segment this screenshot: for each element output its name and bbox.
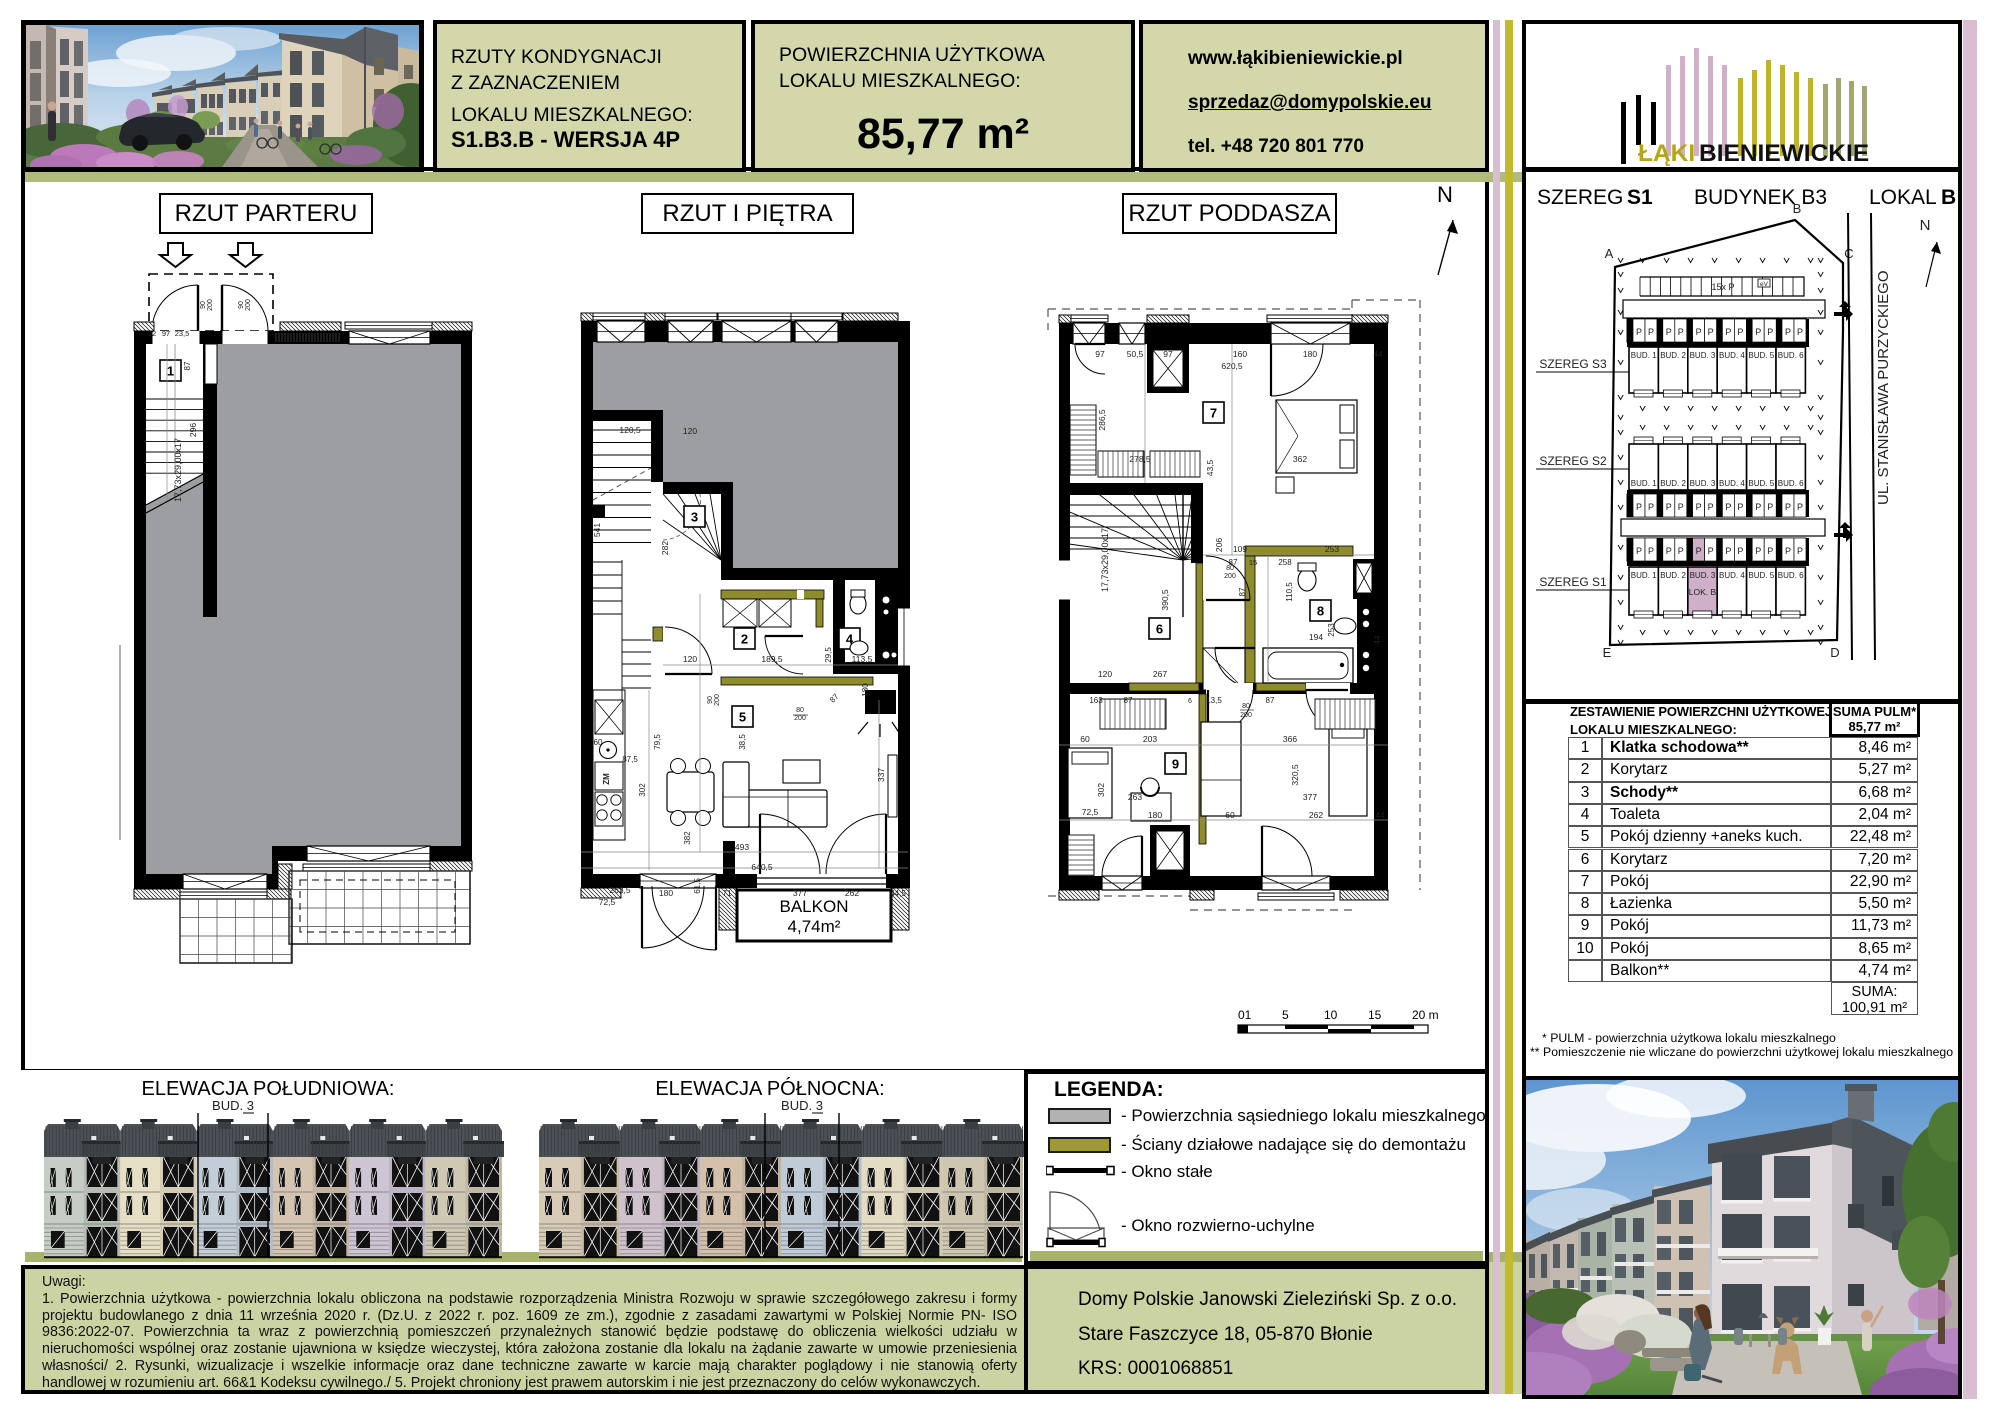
svg-text:5: 5: [739, 710, 746, 725]
svg-text:BUD. 3: BUD. 3: [212, 1098, 254, 1113]
svg-text:200: 200: [207, 299, 214, 311]
svg-text:P: P: [1797, 546, 1803, 556]
svg-text:BUD. 3: BUD. 3: [1690, 571, 1716, 580]
svg-text:87,5: 87,5: [622, 755, 638, 764]
svg-text:BUD. 2: BUD. 2: [1660, 479, 1686, 488]
svg-text:P: P: [1725, 546, 1731, 556]
svg-text:P: P: [1797, 327, 1803, 337]
svg-text:P: P: [1678, 546, 1684, 556]
svg-text:200: 200: [1224, 573, 1236, 580]
svg-text:38,5: 38,5: [738, 734, 747, 750]
svg-text:87: 87: [183, 361, 192, 370]
svg-text:180: 180: [861, 683, 870, 697]
svg-text:80: 80: [1226, 565, 1234, 572]
svg-text:BUD. 3: BUD. 3: [1690, 351, 1716, 360]
svg-text:189,5: 189,5: [761, 654, 783, 664]
svg-text:2: 2: [741, 632, 748, 647]
svg-text:286,5: 286,5: [1097, 409, 1107, 431]
svg-text:97: 97: [1163, 349, 1173, 359]
svg-text:P: P: [1737, 327, 1743, 337]
svg-text:163: 163: [1089, 696, 1103, 705]
svg-text:258: 258: [1278, 558, 1292, 567]
svg-text:263,5: 263,5: [609, 885, 631, 895]
svg-text:337: 337: [876, 768, 886, 782]
svg-text:9: 9: [1172, 757, 1179, 772]
svg-text:17,73x29,00x17: 17,73x29,00x17: [1100, 528, 1110, 592]
svg-text:P: P: [1725, 327, 1731, 337]
svg-text:BUD. 6: BUD. 6: [1778, 479, 1804, 488]
svg-text:200: 200: [794, 715, 806, 722]
svg-text:P: P: [1648, 327, 1654, 337]
svg-text:P: P: [1678, 502, 1684, 512]
svg-text:P: P: [1755, 327, 1761, 337]
svg-text:P: P: [1767, 502, 1773, 512]
svg-text:60: 60: [594, 738, 603, 747]
svg-text:90: 90: [238, 301, 245, 309]
svg-text:302: 302: [638, 783, 647, 797]
svg-text:180: 180: [659, 888, 673, 898]
svg-text:6: 6: [1156, 622, 1163, 637]
svg-text:12: 12: [148, 329, 156, 338]
svg-text:D: D: [1830, 645, 1839, 660]
svg-text:23,5: 23,5: [175, 329, 190, 338]
svg-text:BUD. 5: BUD. 5: [1748, 571, 1774, 580]
svg-text:180: 180: [1148, 810, 1162, 820]
svg-text:SZEREG S3: SZEREG S3: [1539, 357, 1607, 371]
svg-text:362: 362: [1293, 454, 1307, 464]
svg-text:203: 203: [1143, 734, 1157, 744]
svg-text:P: P: [1636, 327, 1642, 337]
svg-text:262: 262: [1309, 810, 1323, 820]
svg-text:LOKAL: LOKAL: [1869, 186, 1937, 209]
svg-text:29,5: 29,5: [824, 647, 833, 663]
svg-text:P: P: [1678, 327, 1684, 337]
svg-text:BUD. 3: BUD. 3: [1690, 479, 1716, 488]
svg-text:80: 80: [1242, 703, 1250, 710]
svg-text:113,5: 113,5: [852, 654, 873, 664]
svg-text:44: 44: [1374, 350, 1383, 359]
svg-text:493: 493: [735, 842, 749, 852]
svg-text:P: P: [1708, 502, 1714, 512]
svg-text:90: 90: [200, 301, 207, 309]
svg-text:P: P: [1785, 502, 1791, 512]
svg-text:5: 5: [1282, 1008, 1289, 1022]
svg-text:7: 7: [1210, 406, 1217, 421]
svg-text:60: 60: [1225, 810, 1235, 820]
svg-text:15: 15: [1368, 1008, 1382, 1022]
svg-text:13,5: 13,5: [1206, 696, 1222, 705]
svg-text:N: N: [1437, 182, 1453, 207]
svg-text:110,5: 110,5: [1285, 582, 1294, 602]
svg-text:BUD. 6: BUD. 6: [1778, 571, 1804, 580]
svg-text:262: 262: [845, 888, 859, 898]
svg-text:200: 200: [245, 299, 252, 311]
svg-text:P: P: [1666, 546, 1672, 556]
svg-text:377: 377: [1303, 792, 1317, 802]
svg-text:87: 87: [828, 692, 841, 705]
svg-text:72,5: 72,5: [1082, 807, 1099, 817]
svg-text:P: P: [1708, 546, 1714, 556]
svg-text:282: 282: [660, 541, 670, 555]
svg-text:BUD. 1: BUD. 1: [1631, 351, 1657, 360]
svg-text:80: 80: [796, 707, 804, 714]
svg-text:BUDYNEK B3: BUDYNEK B3: [1694, 186, 1827, 209]
svg-text:4,74m²: 4,74m²: [788, 917, 841, 936]
svg-text:B: B: [1793, 201, 1802, 216]
svg-text:1: 1: [167, 364, 174, 379]
svg-text:P: P: [1666, 327, 1672, 337]
svg-text:60: 60: [1080, 734, 1090, 744]
svg-text:120: 120: [683, 426, 697, 436]
svg-text:44: 44: [1373, 635, 1382, 644]
svg-text:01: 01: [1238, 1008, 1252, 1022]
svg-text:P: P: [1725, 502, 1731, 512]
svg-text:ELEWACJA POŁUDNIOWA:: ELEWACJA POŁUDNIOWA:: [141, 1078, 394, 1100]
svg-text:296: 296: [188, 423, 198, 437]
svg-text:P: P: [1767, 546, 1773, 556]
svg-text:20 m: 20 m: [1412, 1008, 1439, 1022]
svg-text:ELEWACJA PÓŁNOCNA:: ELEWACJA PÓŁNOCNA:: [655, 1077, 884, 1100]
svg-text:BUD. 6: BUD. 6: [1778, 351, 1804, 360]
svg-text:BUD. 4: BUD. 4: [1719, 479, 1745, 488]
svg-text:120: 120: [683, 654, 697, 664]
svg-text:87: 87: [1124, 696, 1133, 705]
svg-text:10: 10: [1324, 1008, 1338, 1022]
svg-text:BUD. 5: BUD. 5: [1748, 479, 1774, 488]
svg-text:377: 377: [793, 888, 807, 898]
svg-text:43,5: 43,5: [1205, 459, 1215, 476]
svg-text:71: 71: [723, 889, 732, 898]
svg-text:BIENIEWICKIE: BIENIEWICKIE: [1699, 140, 1869, 167]
svg-text:206: 206: [1214, 538, 1224, 552]
svg-text:P: P: [1785, 327, 1791, 337]
svg-text:8: 8: [1317, 604, 1324, 619]
svg-text:SZEREG: SZEREG: [1537, 186, 1623, 209]
svg-text:P: P: [1797, 502, 1803, 512]
svg-text:SZEREG S2: SZEREG S2: [1539, 454, 1607, 468]
svg-text:620,5: 620,5: [1221, 361, 1243, 371]
svg-text:ZM: ZM: [602, 773, 611, 785]
svg-text:97: 97: [1095, 349, 1105, 359]
svg-text:SZEREG S1: SZEREG S1: [1539, 575, 1607, 589]
svg-text:BUD. 3: BUD. 3: [781, 1098, 823, 1113]
svg-text:87: 87: [1238, 587, 1247, 596]
svg-text:160: 160: [1233, 349, 1247, 359]
svg-text:P: P: [1648, 502, 1654, 512]
svg-text:97: 97: [162, 329, 170, 338]
svg-text:15: 15: [1249, 558, 1257, 567]
svg-text:253: 253: [1325, 544, 1339, 554]
svg-text:61,5: 61,5: [693, 878, 702, 894]
svg-text:N: N: [1920, 217, 1931, 234]
svg-text:BUD. 5: BUD. 5: [1748, 351, 1774, 360]
svg-text:180: 180: [1303, 349, 1317, 359]
svg-text:P: P: [1767, 327, 1773, 337]
svg-text:BUD. 4: BUD. 4: [1719, 351, 1745, 360]
svg-text:320,5: 320,5: [1290, 764, 1300, 786]
svg-text:194: 194: [1309, 632, 1323, 642]
svg-text:200: 200: [1240, 712, 1252, 719]
svg-text:BUD. 1: BUD. 1: [1631, 571, 1657, 580]
svg-text:P: P: [1785, 546, 1791, 556]
svg-text:278,5: 278,5: [1129, 454, 1151, 464]
svg-text:BUD. 1: BUD. 1: [1631, 479, 1657, 488]
svg-text:BALKON: BALKON: [780, 897, 849, 916]
svg-text:253: 253: [1327, 623, 1336, 637]
svg-text:72,5: 72,5: [599, 897, 616, 907]
svg-text:200: 200: [714, 694, 721, 706]
svg-text:6: 6: [1188, 698, 1192, 705]
svg-text:302: 302: [1096, 783, 1106, 797]
svg-text:BUD. 2: BUD. 2: [1660, 351, 1686, 360]
svg-text:P: P: [1648, 546, 1654, 556]
svg-text:120,5: 120,5: [619, 425, 641, 435]
svg-text:B: B: [1941, 186, 1956, 209]
svg-text:3: 3: [691, 510, 698, 525]
svg-text:640,5: 640,5: [751, 862, 773, 872]
svg-text:44: 44: [1376, 811, 1385, 820]
svg-text:87: 87: [1266, 696, 1275, 705]
svg-text:P: P: [1636, 546, 1642, 556]
svg-text:BUD. 2: BUD. 2: [1660, 571, 1686, 580]
svg-text:S1: S1: [1627, 186, 1653, 209]
svg-text:263: 263: [1128, 792, 1142, 802]
svg-text:109: 109: [1233, 544, 1247, 554]
svg-text:BUD. 4: BUD. 4: [1719, 571, 1745, 580]
svg-text:79,5: 79,5: [653, 734, 662, 750]
svg-text:17,73x29,00x17: 17,73x29,00x17: [173, 438, 183, 502]
svg-text:44,5: 44,5: [890, 889, 906, 898]
svg-text:P: P: [1696, 546, 1702, 556]
svg-text:P: P: [1737, 502, 1743, 512]
svg-text:P: P: [1755, 546, 1761, 556]
svg-text:P: P: [1737, 546, 1743, 556]
svg-text:ŁĄKI: ŁĄKI: [1638, 140, 1695, 167]
svg-text:A: A: [1605, 246, 1614, 261]
svg-text:LOK. B: LOK. B: [1689, 587, 1717, 597]
svg-text:E: E: [1603, 645, 1612, 660]
svg-text:eV: eV: [1760, 281, 1769, 288]
svg-text:90: 90: [707, 696, 714, 704]
svg-text:P: P: [1666, 502, 1672, 512]
svg-text:541: 541: [592, 523, 602, 537]
svg-text:390,5: 390,5: [1160, 589, 1170, 611]
svg-text:P: P: [1696, 327, 1702, 337]
svg-text:120: 120: [1098, 669, 1112, 679]
svg-text:50,5: 50,5: [1127, 349, 1144, 359]
svg-text:15x P: 15x P: [1711, 282, 1734, 292]
svg-text:267: 267: [1153, 669, 1167, 679]
svg-text:382: 382: [683, 831, 692, 845]
svg-text:P: P: [1696, 502, 1702, 512]
svg-text:P: P: [1755, 502, 1761, 512]
svg-text:P: P: [1636, 502, 1642, 512]
svg-text:P: P: [1708, 327, 1714, 337]
svg-text:UL. STANISŁAWA PURZYCKIEGO: UL. STANISŁAWA PURZYCKIEGO: [1875, 271, 1892, 506]
svg-text:366: 366: [1283, 734, 1297, 744]
